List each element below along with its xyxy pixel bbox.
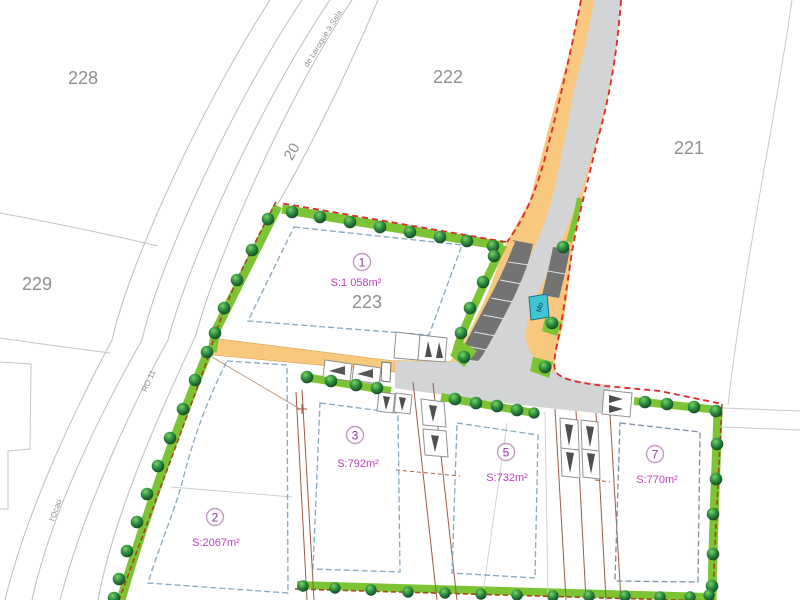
svg-text:221: 221 — [674, 138, 704, 158]
svg-text:229: 229 — [22, 274, 52, 294]
svg-text:3: 3 — [352, 429, 359, 443]
svg-text:7: 7 — [652, 448, 659, 462]
svg-text:S:732m²: S:732m² — [486, 472, 528, 484]
svg-text:S:1 058m²: S:1 058m² — [331, 277, 382, 289]
svg-text:S:792m²: S:792m² — [337, 458, 379, 470]
svg-text:S:2067m²: S:2067m² — [192, 537, 240, 549]
svg-text:2: 2 — [212, 511, 219, 525]
svg-text:S:770m²: S:770m² — [636, 474, 678, 486]
svg-text:228: 228 — [68, 68, 98, 88]
svg-text:222: 222 — [433, 67, 463, 87]
svg-text:223: 223 — [352, 292, 382, 312]
svg-text:1: 1 — [359, 256, 366, 270]
svg-text:5: 5 — [503, 446, 510, 460]
